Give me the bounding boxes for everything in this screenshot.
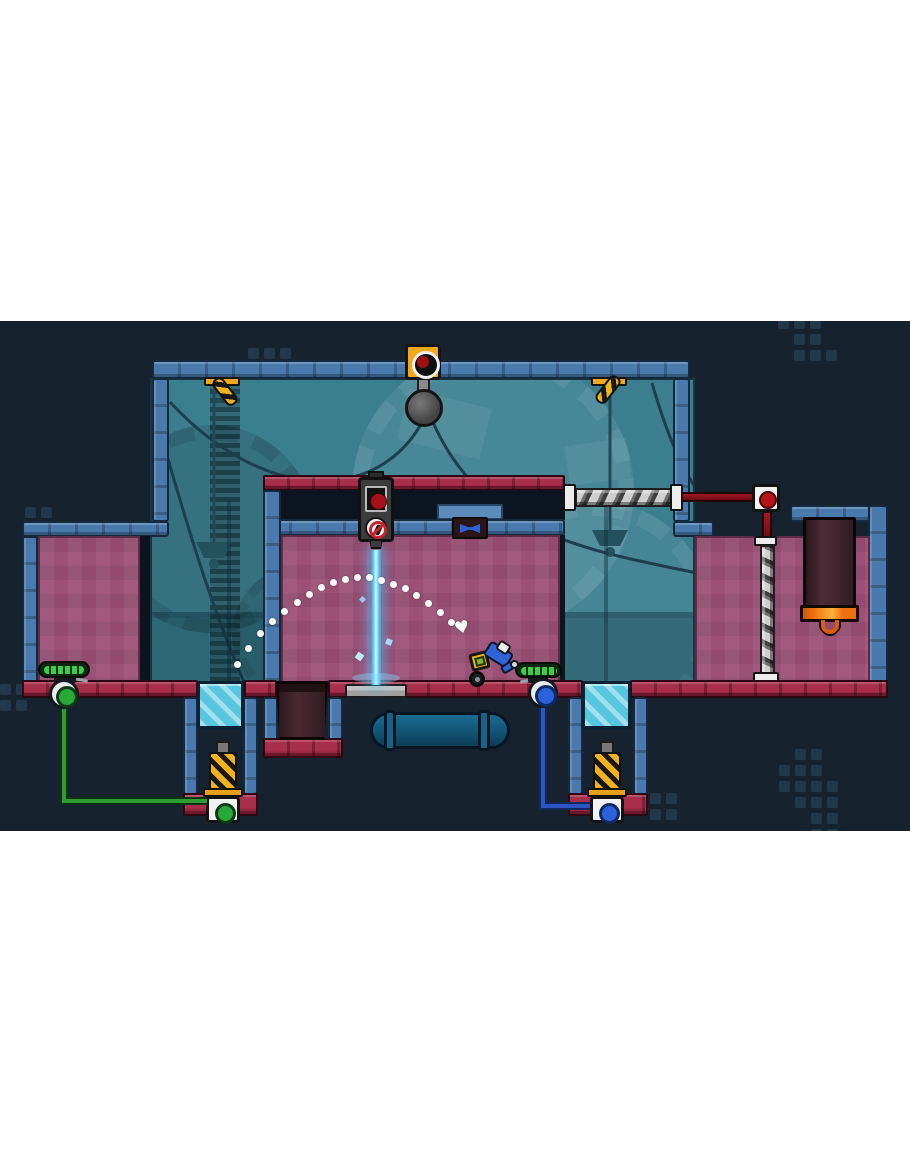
trajectory-dot — [413, 592, 420, 599]
trajectory-dot — [390, 581, 397, 588]
letterbox-top — [0, 0, 910, 321]
trajectory-dot — [318, 584, 325, 591]
trajectory-dot — [366, 574, 373, 581]
wheel-hub — [475, 677, 480, 682]
trajectory-dot — [437, 609, 444, 616]
trajectory-heart-marker: ♥ — [450, 616, 474, 640]
trajectory-dot — [269, 618, 276, 625]
trajectory-dot — [306, 591, 313, 598]
trajectory-dot — [425, 600, 432, 607]
player-robot[interactable] — [462, 640, 518, 688]
trajectory-dot — [330, 579, 337, 586]
letterbox-bottom — [0, 831, 910, 1155]
game-viewport[interactable]: ♥ — [0, 321, 910, 831]
trajectory-dot — [378, 577, 385, 584]
screenshot-stage: ♥ — [0, 0, 910, 1155]
trajectory-dot — [354, 574, 361, 581]
trajectory-dot — [234, 661, 241, 668]
backpack-screen — [474, 656, 486, 667]
trajectory-dot — [402, 585, 409, 592]
trajectory-arc — [0, 321, 910, 831]
trajectory-dot — [342, 576, 349, 583]
trajectory-dot — [245, 645, 252, 652]
trajectory-dot — [257, 630, 264, 637]
heart-glyph: ♥ — [452, 617, 471, 640]
trajectory-dot — [281, 608, 288, 615]
robot-wheel-icon — [469, 671, 485, 687]
robot-hand — [510, 660, 519, 669]
trajectory-dot — [294, 599, 301, 606]
